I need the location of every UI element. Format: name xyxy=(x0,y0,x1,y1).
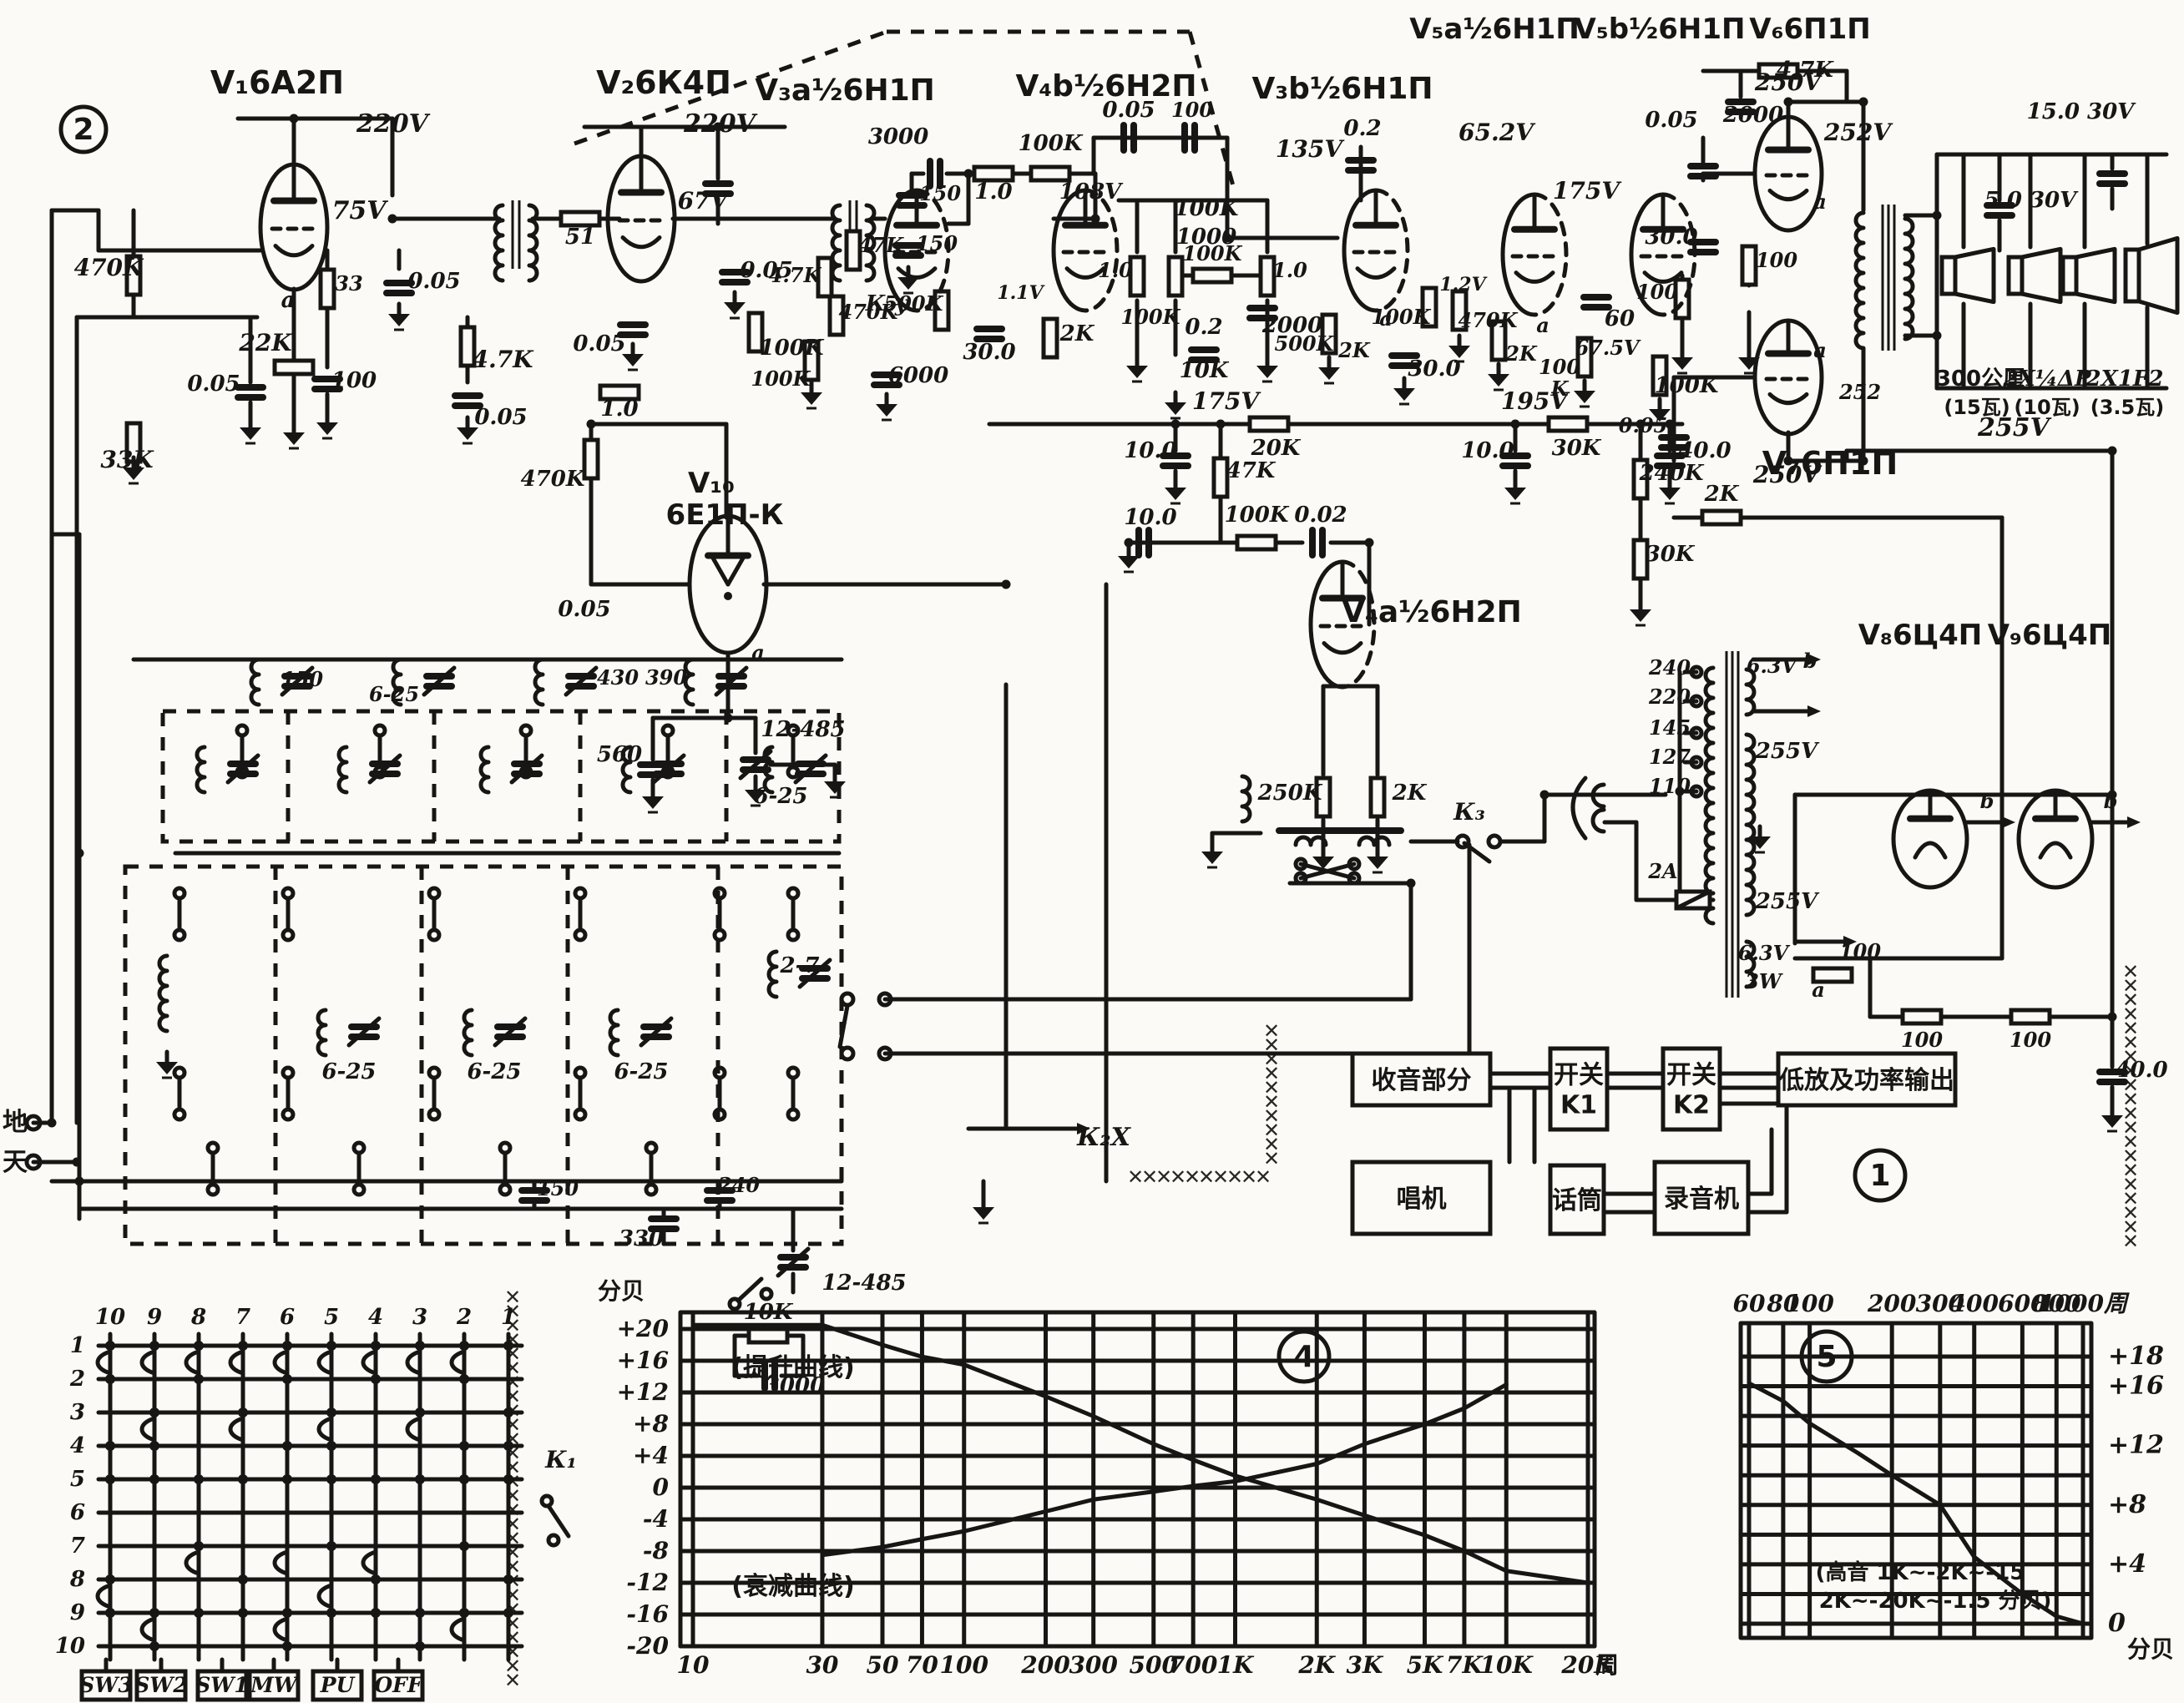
chart-xtick: 5K xyxy=(1407,1651,1444,1679)
chart-xtick: 30 xyxy=(806,1651,838,1679)
chart-ytick: -16 xyxy=(626,1600,669,1628)
block-label: 低放及功率输出 xyxy=(1778,1066,1954,1095)
matrix-dot xyxy=(371,1341,381,1351)
schematic-label: 175V xyxy=(1553,177,1622,205)
coil xyxy=(535,659,543,705)
schematic-label: 6-25 xyxy=(369,682,419,706)
ground-symbol xyxy=(1630,609,1651,622)
wire xyxy=(738,1279,761,1301)
matrix-dot xyxy=(503,1441,513,1451)
matrix-dot xyxy=(326,1541,336,1551)
schematic-label: 175V xyxy=(1192,387,1261,415)
schematic-label: 100K xyxy=(760,336,825,361)
terminal-circle xyxy=(1457,836,1469,847)
speaker-icon xyxy=(2139,238,2177,312)
tube-cathode xyxy=(1770,190,1807,199)
resistor xyxy=(1044,319,1057,357)
chart-annotation: 2K~-20K~-1.5 分贝) xyxy=(1819,1589,2052,1614)
chart-ytick: +4 xyxy=(2108,1549,2146,1579)
magic-eye-deflector xyxy=(711,555,728,584)
chart-xtick: 1000周 xyxy=(2039,1290,2130,1317)
coil xyxy=(1856,213,1863,348)
resistor xyxy=(1742,246,1756,285)
speaker-icon xyxy=(2009,257,2022,294)
schematic-label: 4.7K xyxy=(472,346,534,373)
schematic-label: 2K xyxy=(1059,321,1095,346)
matrix-dot xyxy=(503,1407,513,1417)
rectifier-filament xyxy=(2040,843,2070,857)
block-label: 唱机 xyxy=(1397,1185,1447,1214)
matrix-dot xyxy=(459,1608,469,1618)
power-plug xyxy=(1573,778,1585,838)
chart-ytick: 0 xyxy=(2108,1609,2126,1638)
schematic-label: V₁6А2П xyxy=(210,64,344,101)
matrix-dot xyxy=(371,1574,381,1584)
schematic-label: V₁₀ xyxy=(688,467,735,500)
schematic-label: 220V xyxy=(683,109,758,139)
matrix-dot xyxy=(415,1407,425,1417)
chart-xtick: 10 xyxy=(677,1651,710,1679)
junction-dot xyxy=(75,849,84,858)
schematic-label: 10.0 xyxy=(1124,505,1176,530)
schematic-label: a xyxy=(1536,313,1550,337)
button-label: SW2 xyxy=(134,1673,188,1697)
matrix-dot xyxy=(326,1441,336,1451)
block-label: K1 xyxy=(1560,1091,1597,1120)
coil-bank-outline xyxy=(163,711,839,841)
ground-symbol xyxy=(1671,357,1693,370)
schematic-label: 2K xyxy=(1504,341,1538,366)
matrix-dot xyxy=(238,1474,248,1484)
coil xyxy=(251,659,259,705)
schematic-label: 250V xyxy=(1752,461,1823,488)
schematic-label: 560 xyxy=(597,742,642,767)
schematic-label: 0.05 xyxy=(573,331,625,356)
schematic-label: V₈6Ц4П xyxy=(1858,619,1983,652)
schematic-label: 12-485 xyxy=(761,717,845,742)
schematic-label: 390 xyxy=(645,665,687,690)
matrix-col-label: 5 xyxy=(324,1305,339,1330)
chart-xtick: 300 xyxy=(1069,1651,1118,1679)
schematic-label: 100K xyxy=(1183,241,1243,265)
schematic-label: 240 xyxy=(717,1173,760,1197)
schematic-label: 10.0 xyxy=(1461,438,1514,463)
ground-symbol xyxy=(973,1207,994,1220)
magic-eye-deflector xyxy=(728,555,745,584)
chart-xtick: 100 xyxy=(1785,1290,1834,1317)
terminal-circle xyxy=(842,993,853,1005)
matrix-dot xyxy=(105,1474,115,1484)
schematic-label: 6.3V xyxy=(1747,654,1799,678)
terminal-circle xyxy=(730,1299,740,1309)
schematic-label: 150 xyxy=(916,231,958,255)
schematic-label: 0.2 xyxy=(1185,315,1222,340)
chart-xtick: 7K xyxy=(1446,1651,1484,1679)
schematic-label: 500K xyxy=(1275,331,1335,356)
coil xyxy=(1242,776,1250,821)
chart-ytick: +16 xyxy=(2108,1372,2164,1401)
schematic-label: 2X¼ΔP xyxy=(2002,366,2092,392)
trimmer-arrow xyxy=(641,1018,671,1045)
schematic-label: 地 xyxy=(3,1108,28,1137)
matrix-dot xyxy=(459,1474,469,1484)
schematic-label: 1.0 xyxy=(1098,258,1133,282)
schematic-label: 0.05 xyxy=(1619,413,1667,437)
arrow-head xyxy=(1807,705,1821,717)
chart-ytick: 0 xyxy=(653,1473,670,1501)
resistor xyxy=(1250,417,1288,431)
resistor xyxy=(1549,417,1587,431)
arrow-head xyxy=(2002,816,2015,828)
schematic-label: V₃b½6Н1П xyxy=(1251,72,1433,106)
schematic-label: a xyxy=(281,288,296,313)
matrix-col-label: 4 xyxy=(368,1305,383,1330)
schematic-label: a xyxy=(1379,306,1393,331)
ground-symbol xyxy=(388,314,410,326)
schematic-label: 470K xyxy=(521,467,586,492)
matrix-dot xyxy=(282,1641,292,1651)
matrix-dot xyxy=(326,1474,336,1484)
schematic-label: 100K xyxy=(1225,503,1290,528)
chart-xtick: 50 xyxy=(867,1651,899,1679)
coil xyxy=(464,1010,472,1055)
matrix-dot xyxy=(415,1641,425,1651)
schematic-label: 100K xyxy=(751,366,811,391)
button-label: MW xyxy=(250,1673,300,1697)
block-label: 话筒 xyxy=(1552,1186,1602,1215)
resistor xyxy=(1702,511,1741,524)
resistor xyxy=(974,167,1013,180)
schematic-label: 250V xyxy=(1754,68,1824,96)
schematic-label: 1.1V xyxy=(997,282,1044,304)
ground-symbol xyxy=(1504,488,1526,500)
schematic-label: 47K xyxy=(858,233,904,257)
schematic-label: 2000 xyxy=(1722,103,1783,128)
chart-xunit: 周 xyxy=(1595,1651,1619,1679)
chart-xtick: 700 xyxy=(1169,1651,1218,1679)
block-label: K2 xyxy=(1673,1091,1710,1120)
schematic-label: V₆6П1П xyxy=(1749,13,1870,46)
schematic-label: 6000 xyxy=(888,363,948,388)
matrix-row-label: 9 xyxy=(70,1600,85,1625)
junction-dot xyxy=(1933,331,1942,341)
matrix-dot xyxy=(459,1541,469,1551)
matrix-dot xyxy=(238,1407,248,1417)
matrix-dot xyxy=(194,1608,204,1618)
schematic-label: 1.0 xyxy=(600,397,638,422)
matrix-dot xyxy=(371,1474,381,1484)
schematic-label: 0.05 xyxy=(1645,108,1697,133)
matrix-row-label: 1 xyxy=(70,1333,85,1358)
power-plug xyxy=(1593,810,1604,831)
ground-symbol xyxy=(1165,402,1186,415)
ground-symbol xyxy=(1256,366,1278,378)
ground-symbol xyxy=(2101,1115,2123,1128)
tube-cathode xyxy=(276,246,312,255)
matrix-dot xyxy=(503,1574,513,1584)
ground-symbol xyxy=(876,404,897,417)
chart-ytick: -12 xyxy=(626,1569,669,1596)
coil xyxy=(769,952,776,997)
schematic-label: 1.2V xyxy=(1439,274,1487,296)
chart-ytick: +20 xyxy=(617,1315,670,1342)
schematic-label: 30.0 xyxy=(1645,225,1697,250)
matrix-dot xyxy=(194,1341,204,1351)
tube-cathode xyxy=(898,269,935,278)
matrix-dot xyxy=(503,1341,513,1351)
schematic-label: 240K xyxy=(1639,461,1705,486)
schematic-label: К₃ xyxy=(1453,798,1485,826)
schematic-canvas: ✕✕✕✕✕✕✕✕✕✕✕✕✕✕✕✕✕✕✕✕✕✕✕✕✕✕✕✕✕✕✕✕✕✕✕✕✕✕✕✕… xyxy=(0,0,2184,1703)
coil xyxy=(197,747,205,792)
schematic-label: 127 xyxy=(1649,745,1691,769)
resistor xyxy=(275,361,313,374)
coil xyxy=(1747,735,1754,915)
schematic-label: 2K xyxy=(1392,781,1428,806)
braid-ornament: ✕ xyxy=(1255,1165,1271,1189)
schematic-label: 330 xyxy=(619,1226,664,1251)
schematic-label: 6-25 xyxy=(467,1059,521,1084)
ground-symbol xyxy=(1201,851,1223,864)
schematic-label: V₉6Ц4П xyxy=(1988,619,2112,652)
ground-symbol xyxy=(724,302,746,315)
chart-ytick: -8 xyxy=(643,1537,669,1564)
schematic-label: 22K xyxy=(238,329,293,356)
schematic-label: 252V xyxy=(1823,119,1893,146)
trimmer-arrow xyxy=(566,668,596,695)
schematic-label: a xyxy=(1813,190,1827,214)
junction-dot xyxy=(290,114,299,124)
button-label: PU xyxy=(320,1673,356,1697)
circled-number-text: 5 xyxy=(1816,1340,1837,1374)
resistor xyxy=(321,270,334,308)
speaker-icon xyxy=(2126,250,2139,301)
schematic-label: 470K xyxy=(1459,308,1519,332)
schematic-label: 47K xyxy=(1226,458,1277,483)
matrix-col-label: 9 xyxy=(147,1305,162,1330)
schematic-label: 10.0 xyxy=(1124,438,1176,463)
trimmer-arrow xyxy=(424,668,454,695)
resistor xyxy=(1903,1010,1941,1023)
schematic-label: 220 xyxy=(1648,685,1691,709)
tube-cathode xyxy=(1357,269,1394,278)
matrix-dot xyxy=(326,1407,336,1417)
resistor xyxy=(2011,1010,2050,1023)
chart-ylabel: 分贝 xyxy=(598,1277,645,1305)
matrix-col-label: 1 xyxy=(501,1305,516,1330)
schematic-label: 天 xyxy=(3,1148,28,1177)
schematic-label: 0.05 xyxy=(407,269,460,294)
matrix-dot xyxy=(194,1474,204,1484)
junction-dot xyxy=(1125,538,1134,548)
tube-cathode xyxy=(1324,644,1361,653)
speaker-icon xyxy=(1942,257,1955,294)
resistor xyxy=(1371,778,1384,816)
schematic-label: 195V xyxy=(1501,387,1570,415)
block-label: 录音机 xyxy=(1664,1185,1739,1214)
matrix-dot xyxy=(326,1341,336,1351)
ground-symbol xyxy=(1318,367,1340,380)
matrix-col-label: 3 xyxy=(412,1305,427,1330)
schematic-label: 250K xyxy=(1257,781,1323,806)
matrix-row-label: 8 xyxy=(69,1567,85,1592)
speaker-icon xyxy=(2022,249,2060,301)
junction-dot xyxy=(1511,420,1520,429)
schematic-label: 40.0 xyxy=(2115,1058,2167,1083)
ground-symbol xyxy=(1118,556,1140,569)
schematic-label: (10瓦) xyxy=(2014,396,2080,419)
braid-ornament: ✕ xyxy=(504,1669,521,1692)
schematic-label: a xyxy=(751,640,765,665)
ground-symbol xyxy=(1393,388,1415,401)
speaker-icon xyxy=(2076,249,2115,301)
coil xyxy=(1706,668,1713,923)
schematic-label: 6-25 xyxy=(753,784,807,809)
matrix-dot xyxy=(282,1374,292,1384)
chart-xtick: 1K xyxy=(1217,1651,1255,1679)
junction-dot xyxy=(724,714,733,723)
coil xyxy=(159,956,167,1031)
matrix-dot xyxy=(282,1341,292,1351)
schematic-label: 145 xyxy=(1649,715,1691,740)
schematic-label: 0.05 xyxy=(187,371,240,397)
schematic-label: 0.05 xyxy=(1102,98,1155,123)
schematic-label: 100 xyxy=(1839,939,1881,963)
matrix-dot xyxy=(149,1608,159,1618)
junction-dot xyxy=(73,1158,82,1167)
junction-dot xyxy=(1091,215,1100,224)
schematic-label: 100 xyxy=(1636,280,1678,304)
matrix-row-label: 10 xyxy=(55,1634,85,1659)
matrix-dot xyxy=(371,1374,381,1384)
chart-xtick: 70 xyxy=(906,1651,938,1679)
trimmer-arrow xyxy=(495,1018,525,1045)
junction-dot xyxy=(1540,791,1550,800)
schematic-label: 255V xyxy=(1755,739,1820,764)
schematic-label: V₅b½6Н1П xyxy=(1575,13,1746,46)
schematic-label: 2A xyxy=(1647,859,1677,883)
chart-series-label: (衰减曲线) xyxy=(731,1572,854,1601)
schematic-label: 0.05 xyxy=(474,405,527,430)
circled-number-text: 4 xyxy=(1293,1340,1314,1374)
junction-dot xyxy=(1365,538,1374,548)
trimmer-arrow xyxy=(349,1018,379,1045)
ground-symbol xyxy=(1659,488,1681,500)
matrix-col-label: 6 xyxy=(280,1305,295,1330)
schematic-label: 15.0 30V xyxy=(2027,99,2137,124)
circled-number-text: 2 xyxy=(73,113,94,147)
matrix-dot xyxy=(194,1541,204,1551)
chart-ytick: +8 xyxy=(633,1410,669,1438)
matrix-dot xyxy=(459,1374,469,1384)
matrix-row-label: 5 xyxy=(70,1467,85,1492)
chart-annotation: (高音 1K~-2K~-15 xyxy=(1816,1559,2025,1585)
speaker-icon xyxy=(1955,249,1994,301)
matrix-row-label: 7 xyxy=(70,1534,85,1559)
chart-ytick: +12 xyxy=(617,1378,669,1406)
schematic-label: V₄a½6Н2П xyxy=(1342,595,1522,629)
schematic-label: 4.7K xyxy=(769,263,822,287)
matrix-dot xyxy=(149,1474,159,1484)
coil xyxy=(339,747,346,792)
matrix-dot xyxy=(105,1341,115,1351)
schematic-label: (3.5瓦) xyxy=(2090,396,2164,419)
junction-dot xyxy=(587,420,596,429)
braid-ornament: ✕ xyxy=(2122,1230,2139,1253)
chart-ytick: +4 xyxy=(633,1442,669,1469)
schematic-label: 12-485 xyxy=(822,1271,906,1296)
junction-dot xyxy=(1171,420,1180,429)
chart-ytick: -4 xyxy=(643,1505,669,1533)
ground-symbol xyxy=(1574,391,1595,403)
schematic-label: 30K xyxy=(1646,542,1696,567)
schematic-label: 108V xyxy=(1059,179,1124,205)
matrix-dot xyxy=(105,1374,115,1384)
schematic-label: 30K xyxy=(1552,436,1602,461)
terminal-circle xyxy=(549,1535,559,1545)
terminal-circle xyxy=(542,1496,552,1506)
resistor xyxy=(584,440,598,478)
ground-symbol xyxy=(316,422,338,435)
resistor xyxy=(1237,536,1276,549)
chart-xtick: 2K xyxy=(1297,1651,1336,1679)
chart-ytick: +16 xyxy=(617,1347,669,1374)
schematic-label: b xyxy=(1803,649,1817,673)
schematic-label: 2X1F2 xyxy=(2085,366,2164,392)
junction-dot xyxy=(2108,447,2117,456)
schematic-label: 10K xyxy=(1180,358,1230,383)
matrix-dot xyxy=(459,1341,469,1351)
coil xyxy=(1905,219,1913,339)
ground-symbol xyxy=(824,781,846,794)
matrix-dot xyxy=(282,1474,292,1484)
schematic-label: 0.05 xyxy=(558,597,610,622)
schematic-label: 2K xyxy=(1337,338,1371,362)
junction-dot xyxy=(1216,420,1226,429)
matrix-col-label: 10 xyxy=(95,1305,125,1330)
matrix-dot xyxy=(238,1574,248,1584)
ground-symbol xyxy=(1488,374,1509,387)
schematic-label: V₂6К4П xyxy=(596,64,731,101)
terminal-circle xyxy=(1489,836,1500,847)
chart-xtick: 60 xyxy=(1733,1290,1766,1317)
ground-symbol xyxy=(642,796,664,809)
schematic-label: 2-7 xyxy=(780,953,820,978)
junction-dot xyxy=(75,1177,84,1186)
schematic-label: 100 xyxy=(331,368,377,393)
matrix-dot xyxy=(415,1474,425,1484)
resistor xyxy=(1214,458,1227,497)
schematic-label: К₁ xyxy=(544,1446,577,1473)
matrix-dot xyxy=(415,1608,425,1618)
schematic-label: 3000 xyxy=(868,124,928,149)
ground-symbol xyxy=(801,392,822,405)
junction-dot xyxy=(964,169,973,179)
tube-cathode xyxy=(1516,273,1553,282)
matrix-dot xyxy=(105,1574,115,1584)
schematic-label: 100 xyxy=(1171,98,1213,122)
resistor xyxy=(1193,269,1231,282)
schematic-label: 51 xyxy=(565,225,595,250)
schematic-label: 30.0 xyxy=(1408,356,1460,382)
schematic-label: 150 xyxy=(281,667,323,691)
ground-symbol xyxy=(1367,857,1388,869)
schematic-label: 20K xyxy=(1251,436,1302,461)
junction-dot xyxy=(48,1119,57,1128)
matrix-row-label: 4 xyxy=(70,1433,85,1458)
chart-xtick: 10K xyxy=(1480,1651,1534,1679)
schematic-label: a xyxy=(1812,978,1825,1002)
